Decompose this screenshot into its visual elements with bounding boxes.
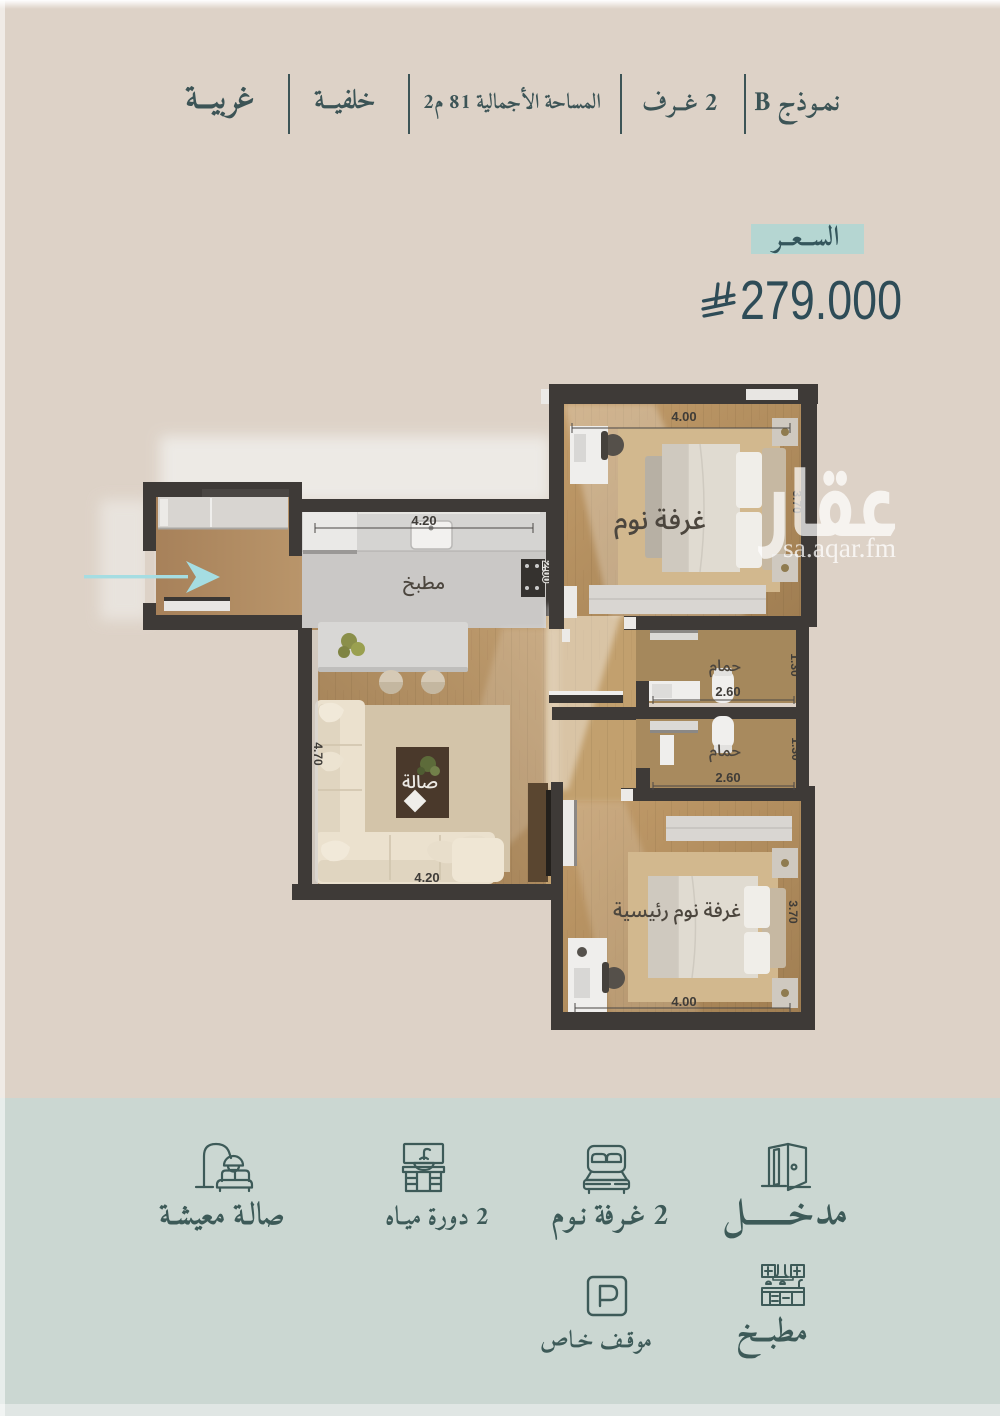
svg-text:4.20: 4.20	[414, 870, 439, 885]
svg-text:4.70: 4.70	[311, 742, 325, 766]
svg-text:4.20: 4.20	[411, 513, 436, 528]
svg-text:279.000: 279.000	[740, 269, 902, 331]
svg-text:2.60: 2.60	[715, 770, 740, 785]
svg-text:sa.aqar.fm: sa.aqar.fm	[783, 533, 896, 563]
svg-text:1.30: 1.30	[789, 737, 803, 761]
svg-text:4.00: 4.00	[671, 409, 696, 424]
svg-text:4.00: 4.00	[671, 994, 696, 1009]
svg-text:3.70: 3.70	[786, 900, 800, 924]
svg-text:2.60: 2.60	[715, 684, 740, 699]
